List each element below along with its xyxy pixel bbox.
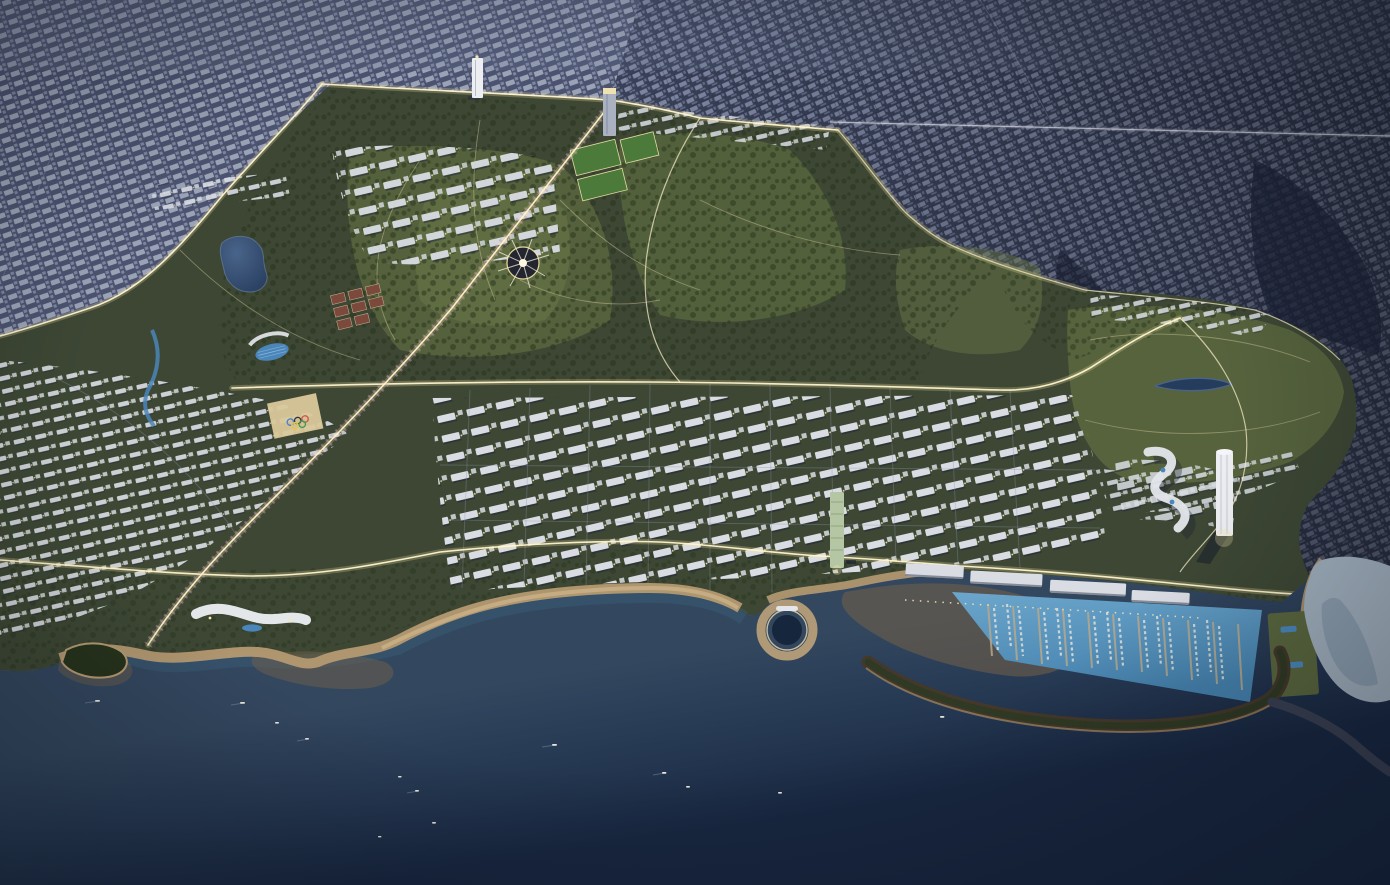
render-canvas <box>0 0 1390 885</box>
aerial-city-render <box>0 0 1390 885</box>
vignette <box>0 0 1390 885</box>
